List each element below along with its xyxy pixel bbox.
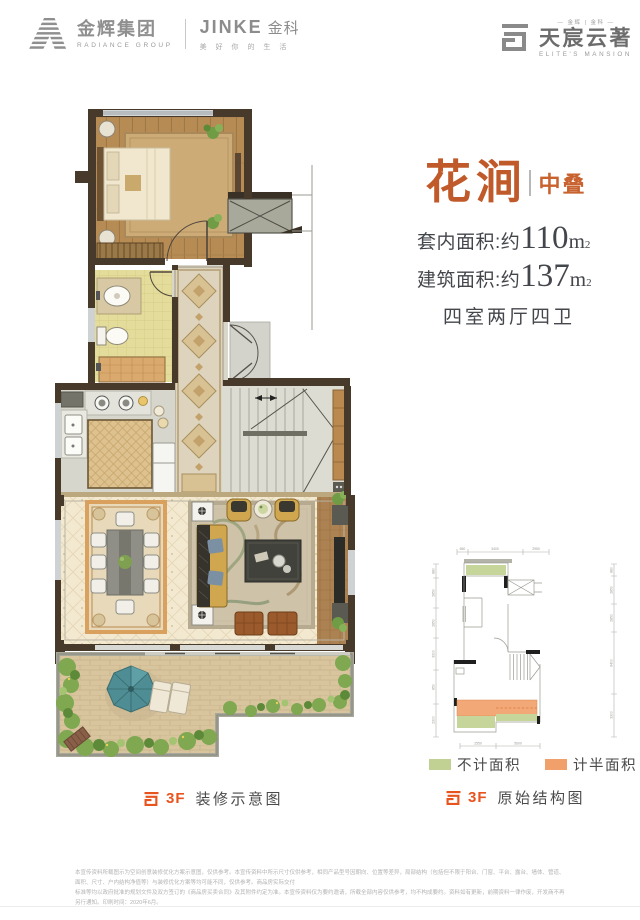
- kitchen: [61, 390, 175, 495]
- elite-en: ELITE'S MANSION: [539, 51, 633, 58]
- stair-handrail: [243, 431, 307, 436]
- sofa: [197, 525, 227, 607]
- caption-structural-plan: 3F 原始结构图: [445, 787, 585, 808]
- range-hood: [61, 392, 83, 407]
- svg-text:2850: 2850: [610, 614, 614, 622]
- bottom-rule: [0, 906, 640, 907]
- gross-area-unit: m: [570, 267, 586, 292]
- hallway-runner-carpet: [172, 265, 228, 500]
- caption-text: 装修示意图: [196, 788, 284, 809]
- svg-text:2950: 2950: [532, 547, 540, 551]
- svg-text:3300: 3300: [432, 650, 436, 658]
- radiance-cn: 金辉集团: [77, 20, 173, 38]
- radiance-logo-icon: [26, 16, 68, 52]
- gross-area-sup: 2: [586, 277, 592, 289]
- toilet: [97, 327, 128, 345]
- caption-decorated-plan: 3F 装修示意图: [143, 788, 283, 809]
- svg-text:2850: 2850: [432, 619, 436, 627]
- structural-outline: [454, 559, 542, 732]
- armchair: [227, 499, 251, 521]
- legend-item-half-counted: 计半面积: [545, 754, 637, 775]
- kitchen-sink: [61, 410, 87, 458]
- cloud-logo-icon: [500, 23, 530, 53]
- disclaimer-line1: 本宣传资料所载图示为空间创意装修优化方案示意图，仅供参考。本宣传资料中所示尺寸仅…: [75, 868, 567, 888]
- bathroom: [95, 270, 174, 382]
- inner-area-value: 110: [520, 222, 568, 255]
- jinke-cn: 金科: [268, 17, 300, 38]
- kitchen-mat: [88, 420, 152, 488]
- jinke-brand: JINKE: [200, 17, 263, 38]
- nightstand: [99, 121, 115, 137]
- area-legend: 不计面积 计半面积: [429, 754, 637, 775]
- caption-floor: 3F: [166, 790, 186, 807]
- uncounted-area-right: [496, 714, 537, 721]
- radiance-en: RADIANCE GROUP: [77, 42, 173, 49]
- svg-text:5600: 5600: [514, 742, 522, 746]
- header-right-logo: — 金辉 | 金科 — 天宸云著 ELITE'S MANSION: [500, 18, 633, 58]
- dining-area: [87, 502, 165, 632]
- svg-text:880: 880: [610, 567, 614, 573]
- floor-trim: [58, 492, 350, 497]
- inner-area-label: 套内面积:约: [417, 227, 520, 254]
- svg-text:3300: 3300: [610, 711, 614, 719]
- uncounted-area-left: [457, 716, 495, 728]
- poster-page: 金辉集团 RADIANCE GROUP JINKE 金科 美 好 你 的 生 活…: [0, 0, 640, 920]
- plate: [154, 406, 164, 416]
- unit-tag: 中叠: [539, 167, 587, 199]
- gross-area-line: 建筑面积:约 137 m 2: [417, 260, 592, 294]
- cloud-mark-icon: [143, 792, 160, 806]
- legend-swatch-orange: [545, 759, 567, 770]
- elite-cn: 天宸云著: [539, 26, 633, 50]
- header-divider: [185, 19, 186, 49]
- console-mat: [332, 505, 349, 525]
- legend-label: 计半面积: [573, 754, 637, 775]
- lamp-table: [192, 502, 213, 521]
- caption-text: 原始结构图: [498, 787, 586, 808]
- unit-title-row: 花涧 中叠: [417, 158, 587, 209]
- svg-text:2550: 2550: [474, 742, 482, 746]
- inner-area-sup: 2: [585, 239, 591, 251]
- lamp-table: [192, 605, 213, 625]
- legend-label: 不计面积: [457, 754, 521, 775]
- svg-text:3400: 3400: [491, 547, 499, 551]
- header-left-logos: 金辉集团 RADIANCE GROUP JINKE 金科 美 好 你 的 生 活: [26, 16, 300, 52]
- title-tag-divider: [529, 170, 531, 196]
- living-dining-room: [61, 491, 349, 644]
- ottoman: [235, 612, 263, 635]
- cloud-mark-icon: [445, 791, 462, 805]
- coffee-table: [245, 540, 301, 582]
- terrace: [56, 652, 352, 757]
- caption-floor: 3F: [468, 789, 488, 806]
- svg-text:650: 650: [460, 547, 466, 551]
- unit-title: 花涧: [425, 158, 527, 209]
- balcony-green-area: [466, 565, 506, 575]
- elite-sub-brands: — 金辉 | 金科 —: [539, 18, 633, 26]
- fridge: [153, 443, 175, 493]
- floor-plan-structural: 650 3400 2950 880 2850 2850 3300 850 230…: [424, 532, 624, 757]
- svg-text:2850: 2850: [610, 586, 614, 594]
- tv-cabinet: [334, 537, 345, 609]
- plate: [158, 418, 168, 428]
- gross-area-label: 建筑面积:约: [417, 265, 520, 292]
- dining-table: [107, 530, 143, 595]
- staircase: [222, 386, 348, 495]
- disclaimer-line2: 标准等均以政府批准的规划文件及双方签订的《商品房买卖合同》及其附件约定为准。本宣…: [75, 888, 567, 908]
- bedroom: [95, 115, 245, 261]
- loungers: [149, 678, 191, 716]
- svg-text:850: 850: [432, 684, 436, 690]
- legend-swatch-green: [429, 759, 451, 770]
- jinke-tagline: 美 好 你 的 生 活: [200, 42, 300, 52]
- floor-plan-decorated: [55, 95, 375, 785]
- round-side-table: [254, 500, 272, 518]
- inner-area-line: 套内面积:约 110 m 2: [417, 222, 590, 256]
- armchair: [275, 499, 299, 521]
- svg-text:2850: 2850: [432, 589, 436, 597]
- bed: [97, 147, 170, 221]
- inner-area-unit: m: [569, 229, 585, 254]
- svg-text:2300: 2300: [432, 716, 436, 724]
- ottoman: [268, 612, 297, 635]
- room-layout-text: 四室两厅四卫: [443, 302, 575, 329]
- wardrobe: [97, 243, 163, 259]
- gross-area-value: 137: [520, 260, 570, 293]
- legend-item-uncounted: 不计面积: [429, 754, 521, 775]
- svg-text:880: 880: [432, 568, 436, 574]
- disclaimer: 本宣传资料所载图示为空间创意装修优化方案示意图，仅供参考。本宣传资料中所示尺寸仅…: [75, 868, 567, 920]
- entry-door: [230, 322, 270, 381]
- svg-text:6400: 6400: [610, 659, 614, 667]
